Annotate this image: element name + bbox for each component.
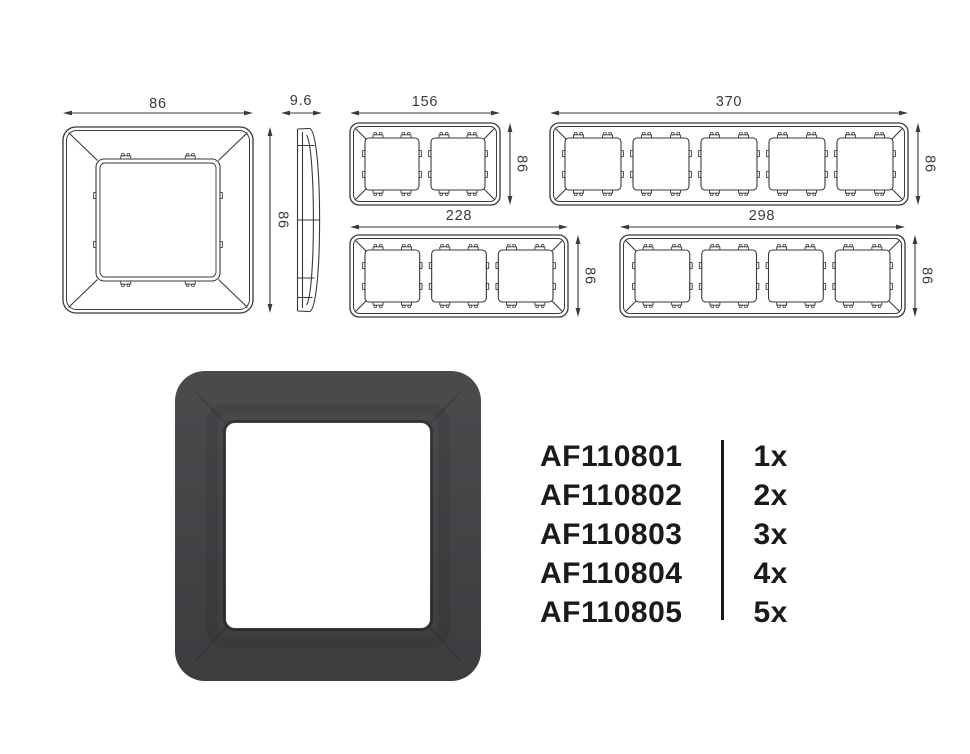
product-quantities-column: 1x2x3x4x5x bbox=[724, 437, 788, 632]
product-code: AF110803 bbox=[540, 515, 721, 554]
dimension-label: 86 bbox=[514, 155, 530, 173]
product-quantity: 2x bbox=[754, 476, 788, 515]
product-list: AF110801AF110802AF110803AF110804AF110805… bbox=[540, 437, 788, 632]
product-quantity: 1x bbox=[754, 437, 788, 476]
product-code: AF110802 bbox=[540, 476, 721, 515]
product-quantity: 4x bbox=[754, 554, 788, 593]
dimension-label: 86 bbox=[275, 211, 291, 229]
dimension-label: 9.6 bbox=[290, 93, 313, 109]
drawing-frame-side-profile: 9.6 bbox=[281, 93, 322, 312]
dimension-label: 298 bbox=[749, 208, 776, 224]
frame-opening bbox=[226, 423, 430, 628]
drawing-frame-2gang-front: 15686 bbox=[350, 94, 530, 205]
spec-sheet-page: 86869.615686370862288629886 AF110801AF11… bbox=[0, 0, 970, 754]
dimension-label: 86 bbox=[149, 96, 167, 112]
product-code: AF110804 bbox=[540, 554, 721, 593]
technical-drawings: 86869.615686370862288629886 bbox=[0, 0, 970, 754]
dimension-label: 370 bbox=[716, 94, 743, 110]
drawing-frame-1gang-front: 8686 bbox=[63, 96, 291, 313]
product-code: AF110805 bbox=[540, 593, 721, 632]
product-quantity: 3x bbox=[754, 515, 788, 554]
drawing-frame-3gang-front: 22886 bbox=[350, 208, 598, 317]
drawing-frame-5gang-front: 37086 bbox=[550, 94, 938, 205]
dimension-label: 86 bbox=[919, 267, 935, 285]
dimension-label: 156 bbox=[412, 94, 439, 110]
dimension-label: 86 bbox=[582, 267, 598, 285]
drawing-frame-4gang-front: 29886 bbox=[620, 208, 935, 317]
product-quantity: 5x bbox=[754, 593, 788, 632]
product-codes-column: AF110801AF110802AF110803AF110804AF110805 bbox=[540, 437, 721, 632]
dimension-label: 228 bbox=[446, 208, 473, 224]
dimension-label: 86 bbox=[922, 155, 938, 173]
product-photo-1gang-frame bbox=[174, 370, 482, 682]
product-code: AF110801 bbox=[540, 437, 721, 476]
